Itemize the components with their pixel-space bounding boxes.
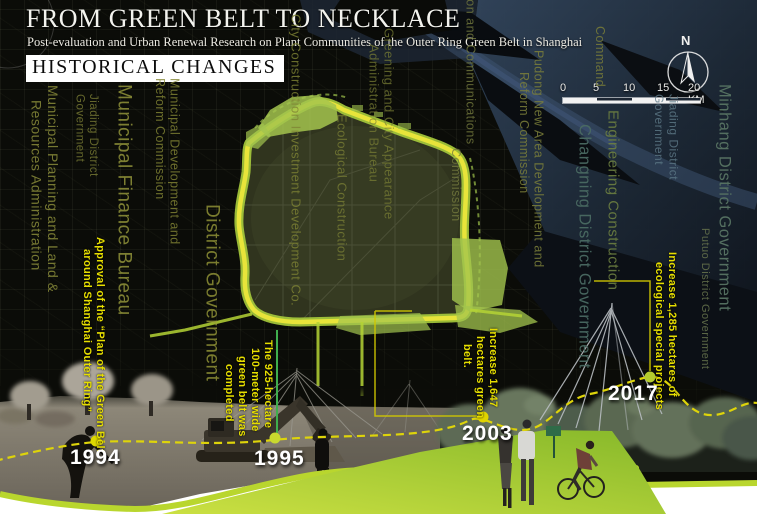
scale-tick: 15 — [657, 82, 669, 94]
gov-label-district-government: District Government — [200, 204, 222, 381]
gov-label-greening-city-appearance: Greening and City Appearance Administrat… — [366, 28, 397, 220]
gov-label-putuo-district: Putuo District Government — [698, 228, 711, 370]
gov-label-construction-communications: Construction and Communications Commissi… — [448, 0, 478, 222]
scale-tick: 10 — [623, 82, 635, 94]
scale-segment — [563, 98, 597, 103]
poster-canvas: { "header": { "title": "FROM GREEN BELT … — [0, 0, 757, 514]
year-2003: 2003 — [462, 422, 513, 446]
north-label: N — [681, 33, 690, 48]
gov-label-minhang-district: Minhang District Government — [714, 84, 733, 311]
gov-label-ecological-construction: Ecological Construction — [334, 114, 349, 261]
gov-label-municipal-dev-reform: Municipal Development and Reform Commiss… — [152, 78, 182, 245]
scale-segment — [597, 98, 631, 103]
note-1994: Approval of the “Plan of the Green Belt … — [80, 237, 106, 453]
gov-label-engineering-construction: Engineering Construction — [604, 110, 622, 290]
street-sign — [546, 426, 561, 436]
gov-label-changning-district: Changning District Government — [574, 124, 593, 369]
gov-label-pudong-new-area: Pudong New Area Development and Reform C… — [516, 50, 546, 268]
year-1995: 1995 — [254, 447, 305, 471]
gov-label-jiading-district-left: Jiading District Government — [72, 94, 99, 177]
gov-label-jiading-district-right: Jiading District Government — [652, 94, 680, 180]
scale-tick: 0 — [560, 82, 566, 94]
note-2003: Increase 1,647 hectares green belt. — [460, 328, 499, 418]
scale-bar: 0 5 10 15 20 KM — [560, 82, 718, 108]
gov-label-municipal-planning-land: Municipal Planning and Land & Resources … — [28, 85, 61, 293]
page-subtitle: Post-evaluation and Urban Renewal Resear… — [27, 35, 582, 50]
gov-label-command: Command — [592, 26, 607, 87]
year-2017: 2017 — [608, 382, 659, 406]
gov-label-city-construction-investment: City Construction Investment Development… — [288, 14, 303, 306]
year-1994: 1994 — [70, 446, 121, 470]
note-1995: The 925-hectare 100-meter wide green bel… — [222, 340, 274, 437]
gov-label-municipal-finance-bureau: Municipal Finance Bureau — [112, 84, 134, 316]
